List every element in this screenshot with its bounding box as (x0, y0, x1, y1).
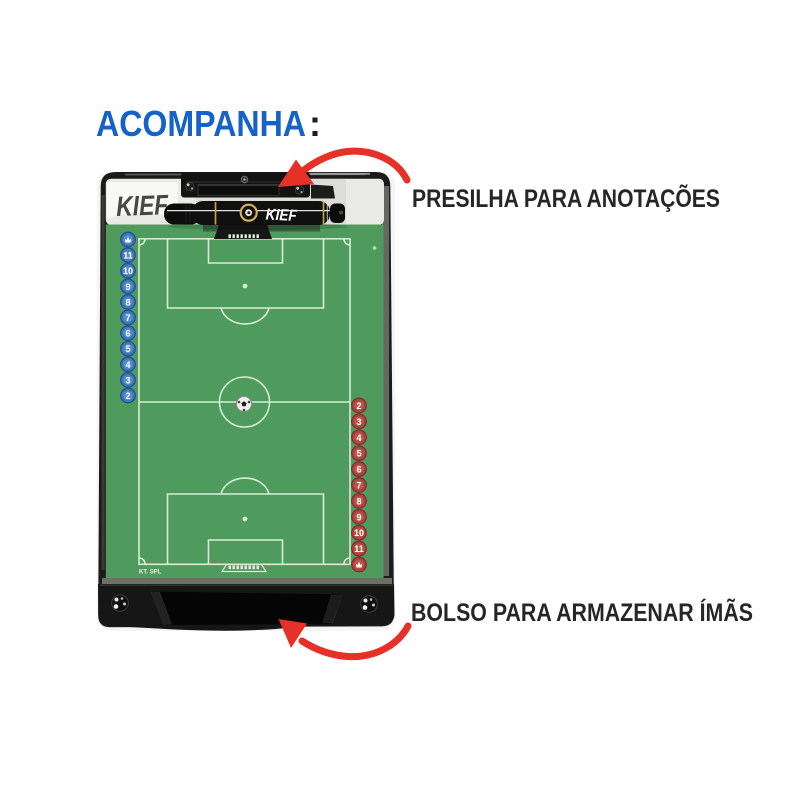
svg-text:5: 5 (356, 449, 361, 459)
svg-text:7: 7 (356, 481, 361, 491)
svg-text:10: 10 (123, 266, 133, 276)
svg-text:4: 4 (125, 360, 130, 370)
svg-text:7: 7 (125, 313, 130, 323)
svg-text:BOLSO PARA ARMAZENAR ÍMÃS: BOLSO PARA ARMAZENAR ÍMÃS (411, 597, 753, 627)
svg-text:3: 3 (125, 375, 130, 385)
svg-text:2: 2 (356, 401, 361, 411)
svg-text:PRESILHA PARA ANOTAÇÕES: PRESILHA PARA ANOTAÇÕES (412, 183, 720, 213)
svg-text:8: 8 (125, 297, 130, 307)
svg-text:6: 6 (356, 465, 361, 475)
svg-text:ACOMPANHA:: ACOMPANHA: (96, 103, 321, 144)
svg-text:10: 10 (354, 528, 364, 538)
svg-text:KT. SPL: KT. SPL (139, 570, 162, 576)
svg-text:KIEF: KIEF (116, 189, 170, 222)
svg-text:4: 4 (356, 433, 361, 443)
svg-text:KIEF: KIEF (265, 207, 298, 225)
svg-text:3: 3 (356, 417, 361, 427)
svg-text:11: 11 (123, 251, 133, 261)
svg-text:9: 9 (125, 282, 130, 292)
svg-text:8: 8 (356, 496, 361, 506)
svg-text:6: 6 (125, 329, 130, 339)
svg-text:11: 11 (354, 544, 364, 554)
svg-text:9: 9 (356, 512, 361, 522)
svg-text:2: 2 (125, 391, 130, 401)
svg-text:5: 5 (125, 344, 130, 354)
